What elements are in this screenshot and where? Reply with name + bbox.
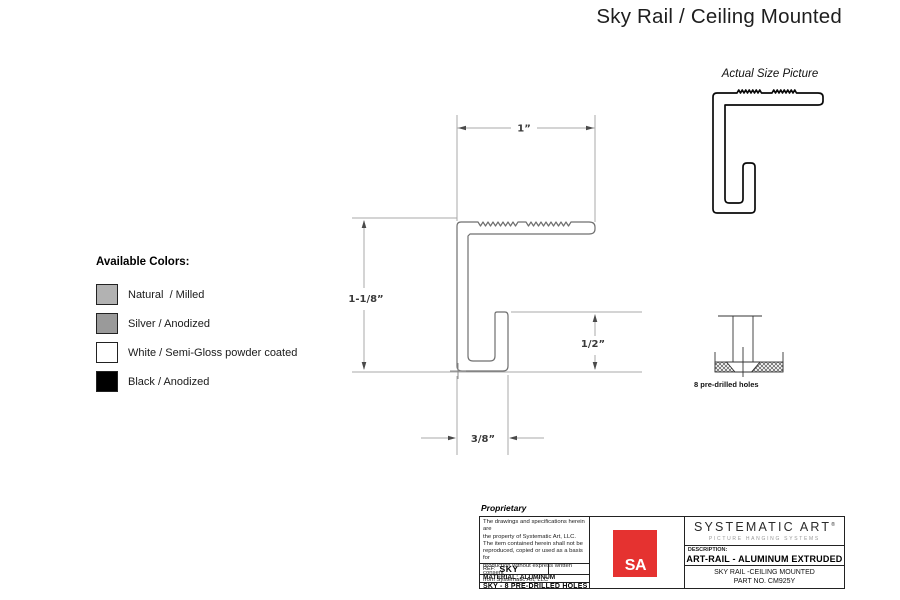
color-label-black: Black / Anodized	[128, 376, 209, 388]
trademark-symbol: ®	[831, 522, 835, 528]
description-label: DESCRIPTION:	[688, 547, 727, 553]
description-row: DESCRIPTION: ART-RAIL - ALUMINUM EXTRUDE…	[685, 546, 844, 567]
actual-size-profile-outline	[713, 90, 823, 213]
color-swatch-natural	[96, 284, 118, 305]
proprietary-line: the property of Systematic Art, LLC.	[483, 534, 589, 541]
main-profile-drawing: 1” 1-1/8” 1/2” 3/8”	[338, 108, 650, 460]
dim-height: 1-1/8”	[348, 294, 383, 305]
ref-empty-cell	[549, 564, 589, 574]
proprietary-line: reproduced, copied or used as a basis fo…	[483, 548, 589, 563]
color-row-white: White / Semi-Gloss powder coated	[96, 342, 297, 363]
color-row-black: Black / Anodized	[96, 371, 297, 392]
dimension-lines	[352, 115, 642, 455]
part-number: PART NO. CM925Y	[685, 577, 844, 586]
proprietary-notice: The drawings and specifications herein a…	[480, 517, 589, 564]
product-part-row: SKY RAIL -CEILING MOUNTED PART NO. CM925…	[685, 566, 844, 588]
logo-text: SA	[625, 558, 646, 577]
title-block: The drawings and specifications herein a…	[479, 516, 845, 589]
proprietary-line: The drawings and specifications herein a…	[483, 519, 589, 534]
dim-top-width: 1”	[517, 124, 531, 135]
ref-label: REF:	[483, 566, 496, 572]
company-name-text: SYSTEMATIC ART	[694, 520, 831, 534]
color-swatch-white	[96, 342, 118, 363]
ref-cell: REF: SKY	[480, 564, 549, 574]
page-title: Sky Rail / Ceiling Mounted	[520, 5, 842, 29]
company-tagline: PICTURE HANGING SYSTEMS	[685, 536, 844, 542]
product-name: SKY RAIL -CEILING MOUNTED	[685, 568, 844, 577]
color-swatch-silver	[96, 313, 118, 334]
ref-value: SKY	[500, 564, 519, 574]
company-name: SYSTEMATIC ART®	[685, 521, 844, 535]
proprietary-heading: Proprietary	[481, 503, 526, 513]
title-block-right: SYSTEMATIC ART® PICTURE HANGING SYSTEMS …	[685, 517, 844, 588]
color-label-natural: Natural / Milled	[128, 289, 204, 301]
material-row: MATERIAL: ALUMINUM	[480, 575, 589, 583]
proprietary-line: The item contained herein shall not be	[483, 541, 589, 548]
color-label-silver: Silver / Anodized	[128, 318, 210, 330]
company-header: SYSTEMATIC ART® PICTURE HANGING SYSTEMS	[685, 517, 844, 546]
color-row-silver: Silver / Anodized	[96, 313, 297, 334]
profile-outline	[457, 222, 595, 371]
dim-foot-width: 3/8”	[471, 434, 495, 445]
systematic-art-logo: SA	[613, 530, 657, 577]
available-colors-block: Available Colors: Natural / Milled Silve…	[96, 256, 297, 400]
color-label-white: White / Semi-Gloss powder coated	[128, 347, 297, 359]
available-colors-heading: Available Colors:	[96, 256, 297, 268]
dim-hook-height: 1/2”	[581, 339, 605, 350]
actual-size-label: Actual Size Picture	[700, 68, 840, 80]
countersink-section-drawing	[705, 309, 795, 381]
color-swatch-black	[96, 371, 118, 392]
actual-size-profile-drawing	[705, 84, 830, 220]
pre-drilled-holes-note: 8 pre-drilled holes	[694, 380, 804, 389]
dimension-arrowheads	[362, 126, 598, 441]
part-line-row: SKY - 8 PRE-DRILLED HOLES	[480, 583, 589, 590]
title-block-left: The drawings and specifications herein a…	[480, 517, 590, 588]
title-block-logo-cell: SA	[590, 517, 684, 588]
color-row-natural: Natural / Milled	[96, 284, 297, 305]
